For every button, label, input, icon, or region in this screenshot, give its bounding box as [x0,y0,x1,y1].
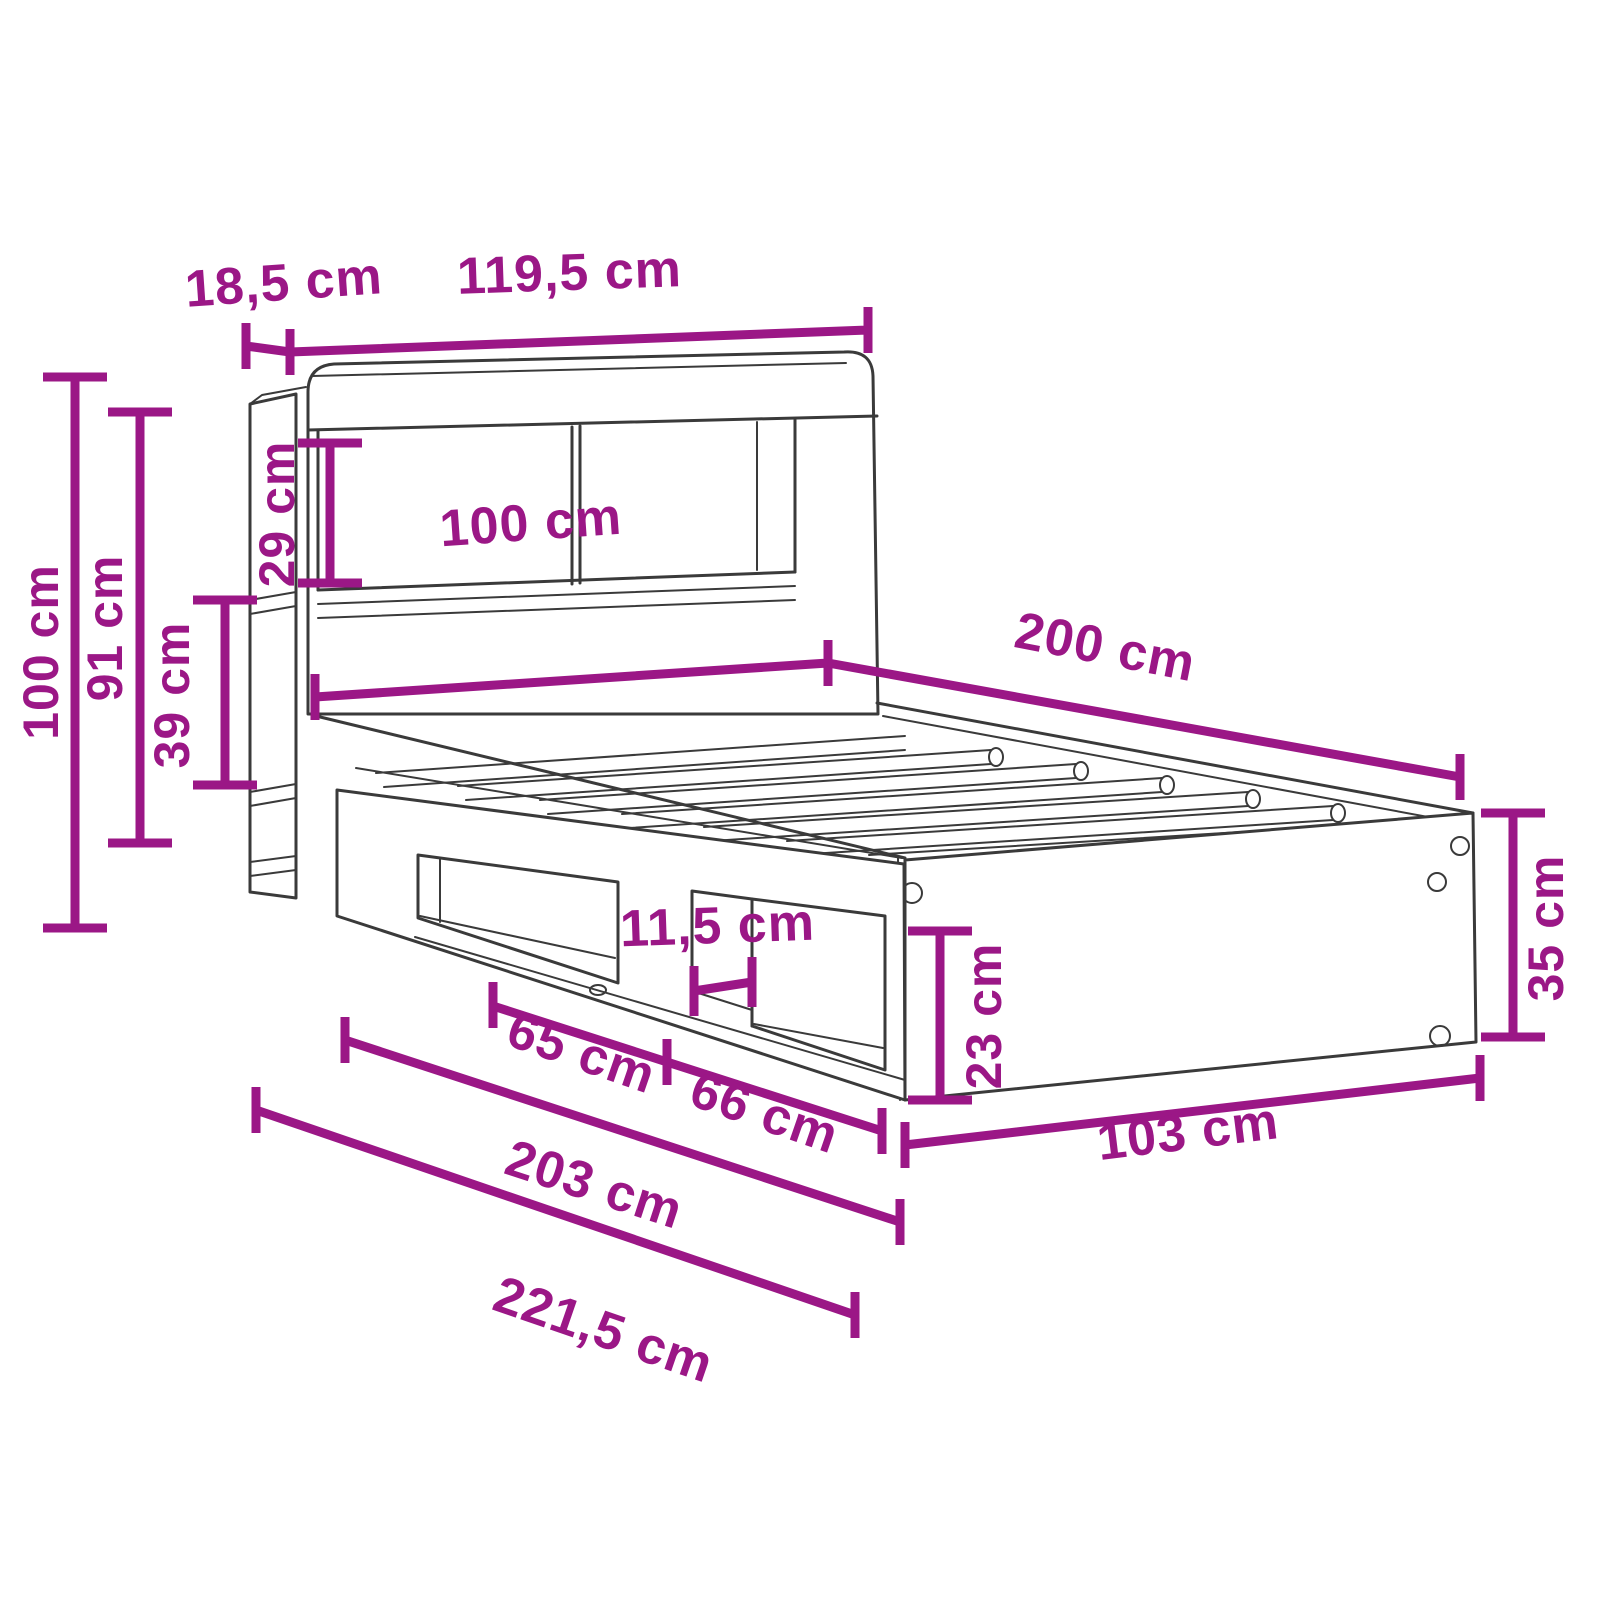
slat-end-cap [1160,776,1174,794]
dim-label-total-height: 100 cm [13,564,69,740]
diagram-canvas: 18,5 cm 119,5 cm 100 cm 91 cm 39 cm 29 c… [0,0,1600,1600]
dim-label-headboard-panel-height: 91 cm [77,555,133,702]
dim-headboard-depth: 18,5 cm [183,247,384,375]
dim-label-frame-outer-width: 103 cm [1094,1092,1282,1172]
slat-end-cap [989,748,1003,766]
dim-label-divider-gap: 11,5 cm [619,894,816,959]
dim-side-shelf-spacing: 39 cm [144,600,257,785]
slat-end-cap [1074,762,1088,780]
slat-end-cap [1246,790,1260,808]
dim-bed-length: 200 cm [828,601,1460,800]
slat-end-cap [1331,804,1345,822]
dim-label-cubby-right-width: 66 cm [683,1061,846,1165]
dim-label-headboard-depth: 18,5 cm [183,247,384,319]
dimension-diagram: 18,5 cm 119,5 cm 100 cm 91 cm 39 cm 29 c… [0,0,1600,1600]
dim-label-side-shelf-spacing: 39 cm [144,622,200,769]
dim-label-cubby-opening-height: 23 cm [956,943,1012,1090]
dim-label-frame-height: 35 cm [1518,855,1574,1002]
dim-label-cubby-left-width: 65 cm [500,1001,663,1105]
dim-label-total-depth: 221,5 cm [486,1265,720,1394]
dim-label-headboard-width: 119,5 cm [456,240,683,306]
dim-frame-height: 35 cm [1481,813,1574,1037]
dim-label-bed-length: 200 cm [1010,601,1200,693]
dim-label-compartment-height: 29 cm [249,441,305,588]
